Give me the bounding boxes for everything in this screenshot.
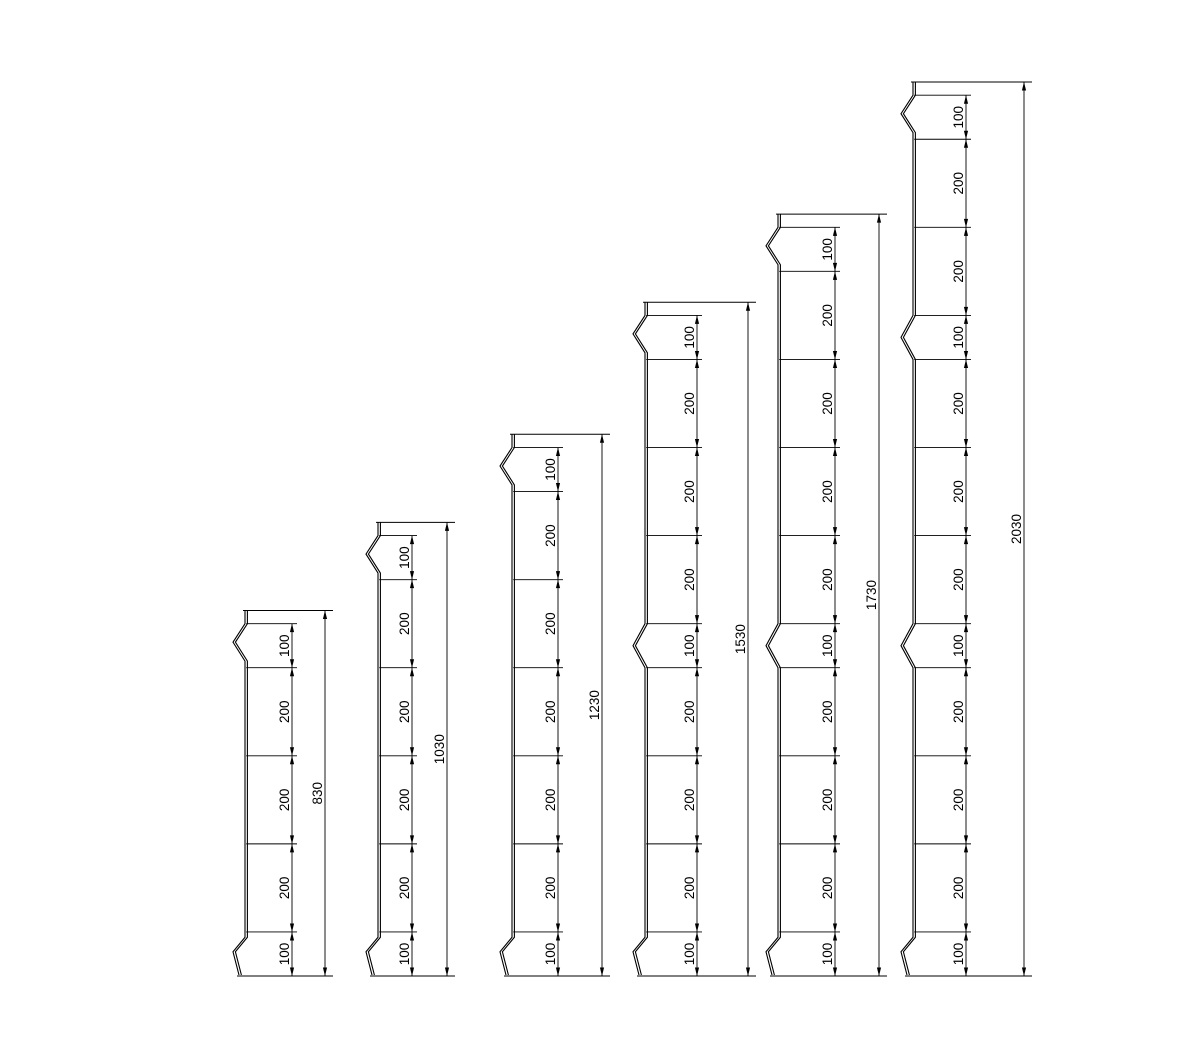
dimension-drawing-830: 100200200200100830 bbox=[233, 610, 333, 976]
dimension-label: 200 bbox=[397, 700, 412, 723]
dimension-drawing-1030: 1002002002002001001030 bbox=[366, 522, 455, 976]
dimension-label: 200 bbox=[682, 392, 697, 415]
dimension-label: 100 bbox=[682, 943, 697, 966]
dimension-label: 100 bbox=[682, 326, 697, 349]
dimension-label: 2030 bbox=[1009, 514, 1024, 544]
dimension-label: 200 bbox=[682, 877, 697, 900]
dimension-label: 1030 bbox=[432, 734, 447, 764]
dimension-label: 200 bbox=[682, 700, 697, 723]
dimension-label: 100 bbox=[820, 943, 835, 966]
dimension-drawing-2030: 1002002001002002002001002002002001002030 bbox=[901, 82, 1032, 976]
dimension-label: 200 bbox=[820, 392, 835, 415]
dimension-label: 200 bbox=[951, 480, 966, 503]
dimension-label: 200 bbox=[951, 568, 966, 591]
dimension-label: 200 bbox=[543, 524, 558, 547]
dimension-label: 830 bbox=[310, 782, 325, 805]
dimension-label: 100 bbox=[277, 634, 292, 657]
dimension-drawing-1230: 1002002002002002001001230 bbox=[500, 434, 610, 976]
technical-drawing-svg: 1002002002001008301002002002002001001030… bbox=[0, 0, 1201, 1048]
dimension-label: 200 bbox=[543, 700, 558, 723]
dimension-label: 100 bbox=[820, 238, 835, 261]
dimension-label: 200 bbox=[682, 789, 697, 812]
dimension-label: 200 bbox=[682, 480, 697, 503]
dimension-label: 200 bbox=[277, 877, 292, 900]
dimension-label: 200 bbox=[820, 480, 835, 503]
dimension-label: 200 bbox=[397, 877, 412, 900]
dimension-label: 200 bbox=[951, 260, 966, 283]
dimension-drawing-1730: 1002002002002001002002002001001730 bbox=[766, 214, 887, 976]
dimension-label: 200 bbox=[951, 877, 966, 900]
dimension-label: 200 bbox=[820, 700, 835, 723]
dimension-label: 100 bbox=[397, 943, 412, 966]
dimension-label: 200 bbox=[820, 568, 835, 591]
dimension-label: 200 bbox=[543, 789, 558, 812]
dimension-label: 200 bbox=[820, 789, 835, 812]
dimension-label: 100 bbox=[397, 546, 412, 569]
dimension-label: 100 bbox=[951, 106, 966, 129]
dimension-label: 200 bbox=[397, 789, 412, 812]
dimension-label: 100 bbox=[277, 943, 292, 966]
dimension-label: 100 bbox=[951, 634, 966, 657]
dimension-label: 1530 bbox=[733, 624, 748, 654]
dimension-label: 200 bbox=[951, 172, 966, 195]
dimension-label: 200 bbox=[397, 612, 412, 635]
dimension-label: 100 bbox=[951, 943, 966, 966]
dimension-label: 100 bbox=[682, 634, 697, 657]
dimension-label: 200 bbox=[820, 877, 835, 900]
dimension-label: 1230 bbox=[587, 690, 602, 720]
dimension-label: 100 bbox=[951, 326, 966, 349]
dimension-label: 100 bbox=[543, 458, 558, 481]
drawing-canvas: 1002002002001008301002002002002001001030… bbox=[0, 0, 1201, 1048]
dimension-label: 200 bbox=[951, 392, 966, 415]
dimension-label: 200 bbox=[277, 789, 292, 812]
dimension-label: 1730 bbox=[864, 580, 879, 610]
dimension-label: 200 bbox=[951, 789, 966, 812]
dimension-label: 200 bbox=[951, 700, 966, 723]
dimension-label: 200 bbox=[543, 612, 558, 635]
dimension-label: 200 bbox=[820, 304, 835, 327]
dimension-drawing-1530: 1002002002001002002002001001530 bbox=[633, 302, 756, 976]
dimension-label: 200 bbox=[543, 877, 558, 900]
dimension-label: 200 bbox=[277, 700, 292, 723]
dimension-label: 100 bbox=[820, 634, 835, 657]
dimension-label: 100 bbox=[543, 943, 558, 966]
dimension-label: 200 bbox=[682, 568, 697, 591]
